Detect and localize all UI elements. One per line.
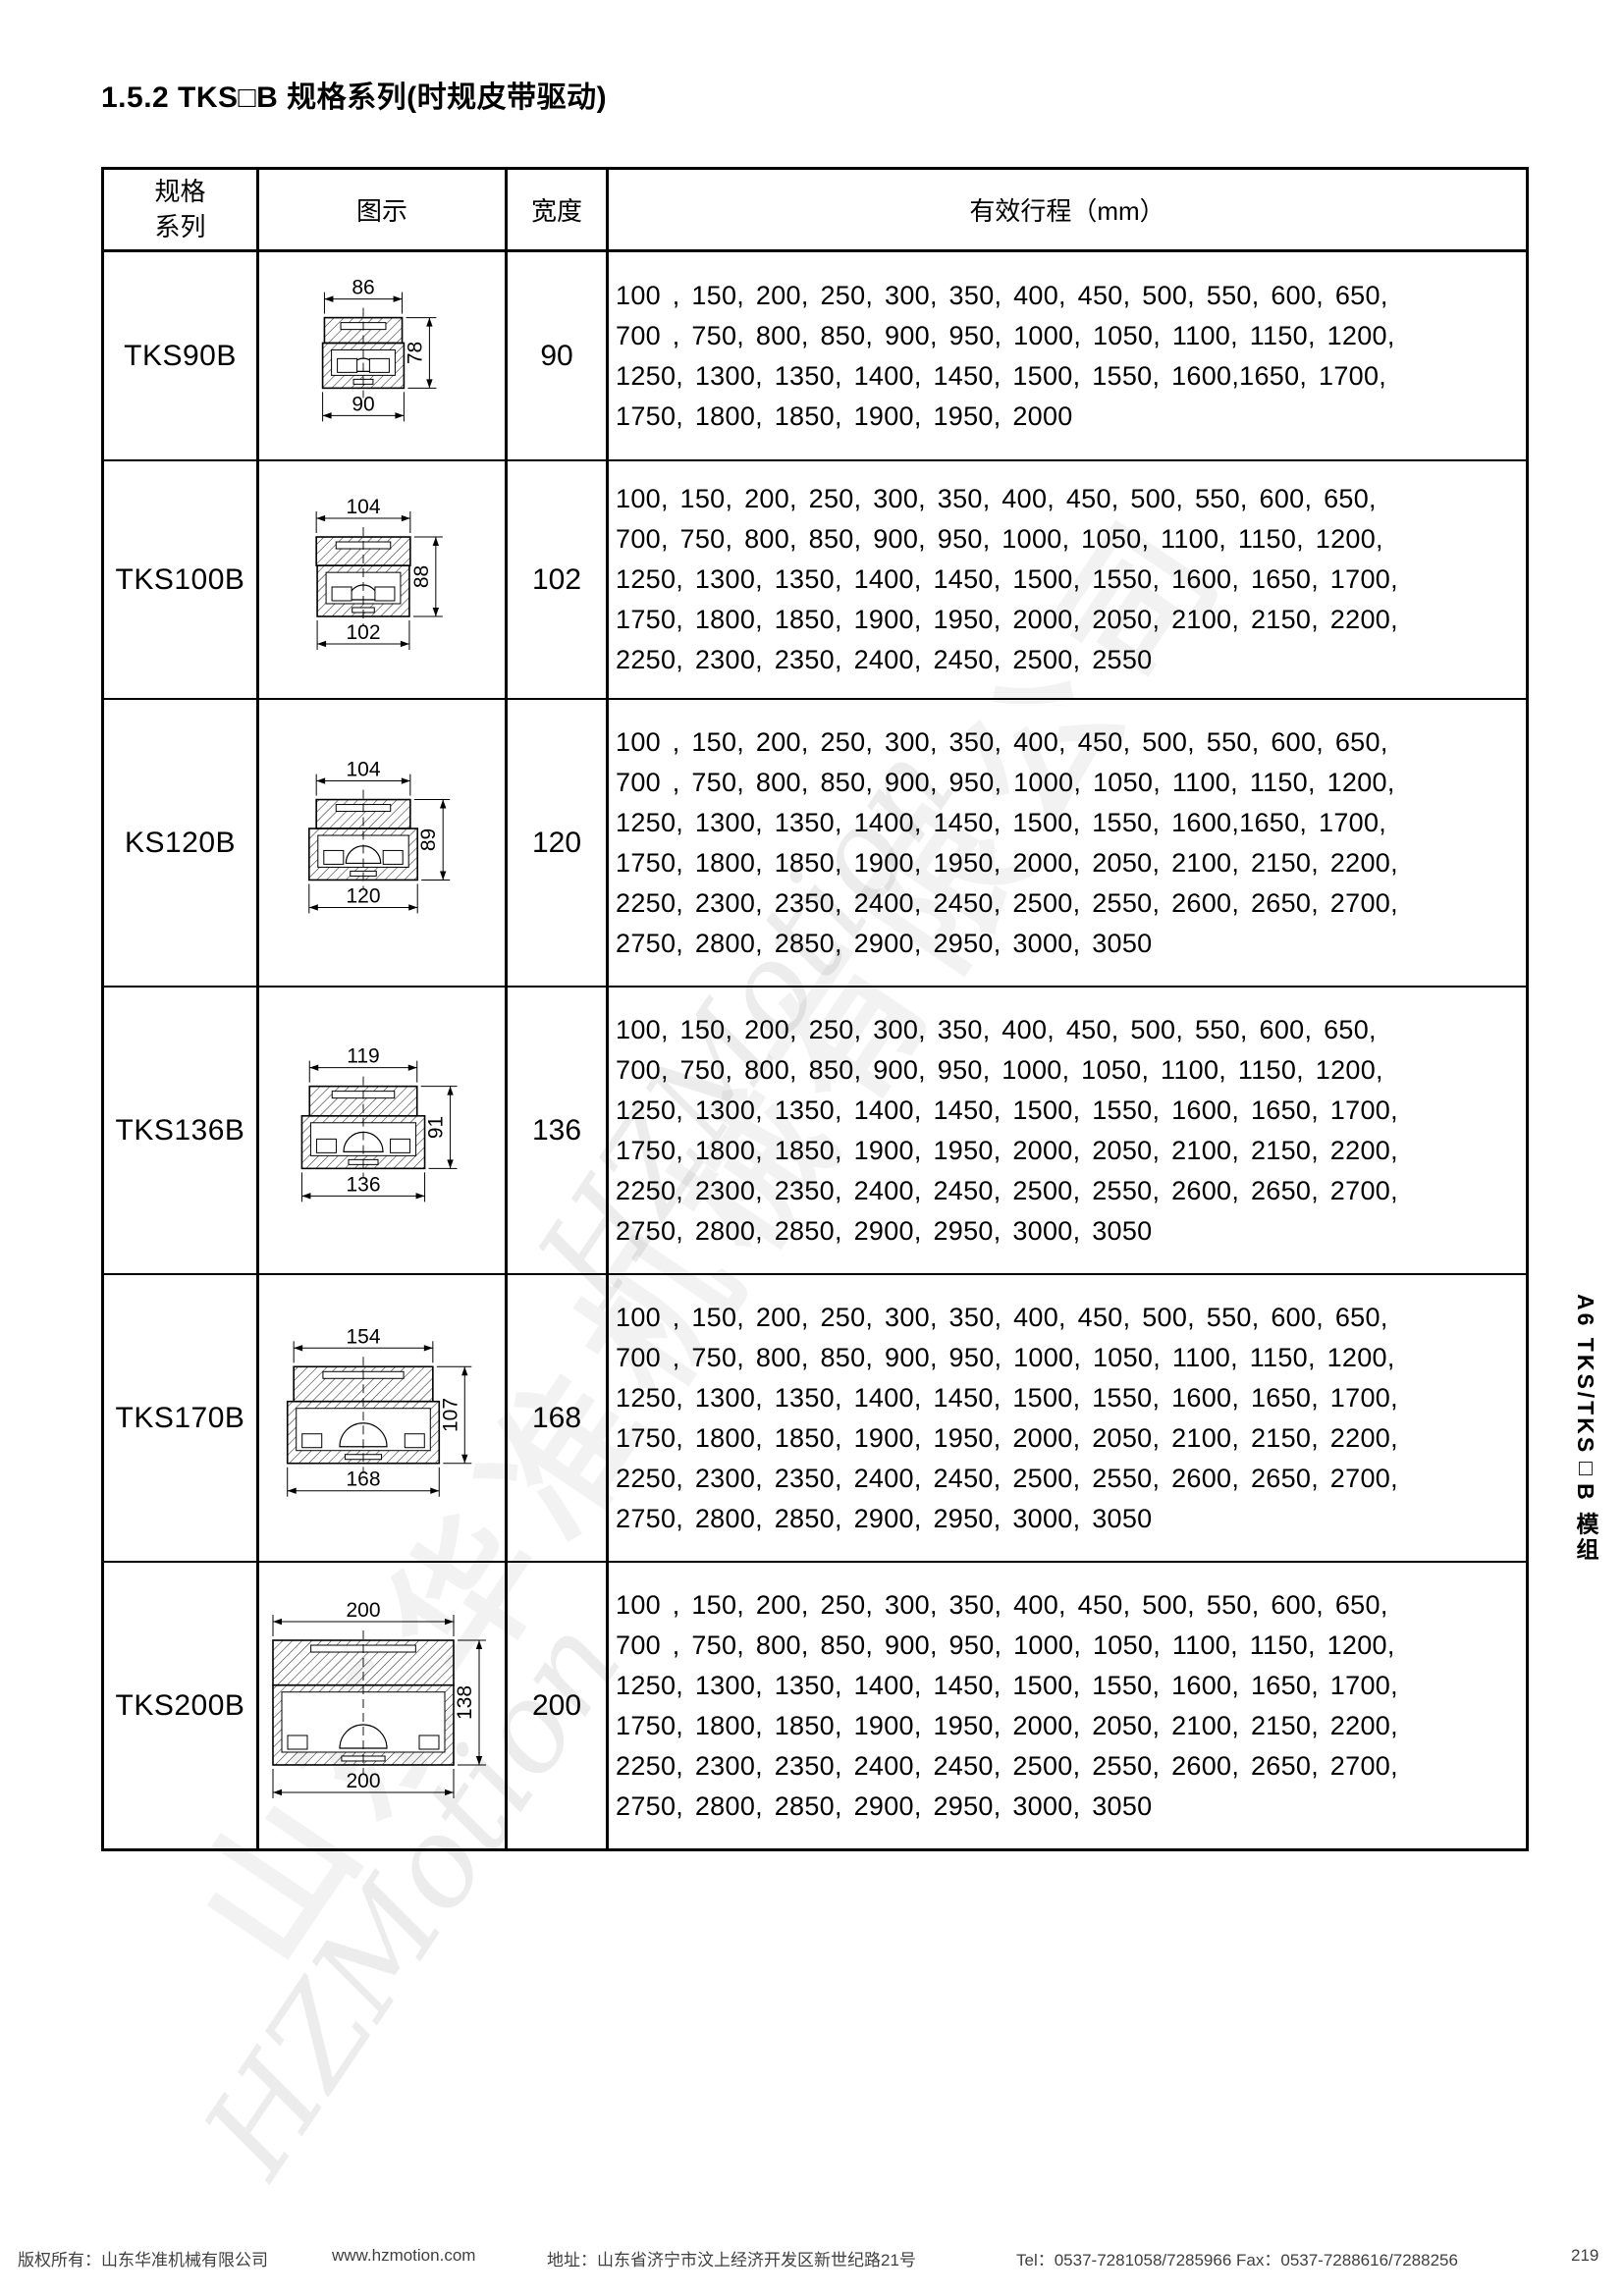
stroke-cell: 100, 150, 200, 250, 300, 350, 400, 450, … [606, 988, 1526, 1273]
width-cell: 120 [505, 700, 606, 986]
diagram-top-width-label: 86 [352, 277, 374, 299]
width-value: 168 [532, 1402, 581, 1435]
diagram-bottom-width-label: 136 [346, 1173, 380, 1196]
guide-block-right [419, 1735, 439, 1749]
diagram-bottom-width-label: 120 [346, 884, 380, 907]
guide-block-left [316, 1139, 336, 1152]
footer-copyright: 版权所有：山东华准机械有限公司 [18, 2246, 268, 2270]
module-cross-section-diagram: 11913691 [261, 989, 504, 1271]
stroke-list: 100 , 150, 200, 250, 300, 350, 400, 450,… [609, 1294, 1402, 1543]
module-cross-section-diagram: 200200138 [261, 1565, 504, 1846]
stroke-list: 100, 150, 200, 250, 300, 350, 400, 450, … [609, 475, 1402, 684]
width-cell: 200 [505, 1563, 606, 1848]
table-row: TKS200B 200200138 200 100 , 150, 200, 25… [104, 1561, 1526, 1848]
table-row: TKS170B 154168107 168 100 , 150, 200, 25… [104, 1273, 1526, 1561]
guide-block-right [383, 850, 403, 864]
series-name: TKS200B [116, 1689, 245, 1723]
series-name: TKS136B [116, 1114, 245, 1148]
column-header-series: 规格 系列 [104, 170, 256, 249]
guide-block-left [288, 1735, 307, 1749]
guide-block-left [301, 1434, 321, 1448]
spec-table: 规格 系列 图示 宽度 有效行程（mm） TKS90B 869078 90 10… [101, 167, 1529, 1851]
diagram-height-label: 89 [417, 828, 440, 851]
diagram-height-label: 91 [424, 1116, 447, 1139]
diagram-cell: 10410288 [256, 461, 505, 698]
diagram-bottom-width-label: 90 [352, 393, 374, 415]
stroke-cell: 100 , 150, 200, 250, 300, 350, 400, 450,… [606, 1275, 1526, 1561]
series-name: TKS170B [116, 1402, 245, 1435]
diagram-height-label: 88 [409, 565, 432, 588]
guide-block-right [369, 358, 389, 372]
module-cross-section-diagram: 869078 [261, 254, 504, 457]
diagram-cell: 11913691 [256, 988, 505, 1273]
series-name-cell: TKS90B [104, 252, 256, 459]
footer-website-link[interactable]: www.hzmotion.com [332, 2246, 475, 2266]
diagram-height-label: 138 [454, 1685, 476, 1720]
series-name-cell: TKS100B [104, 461, 256, 698]
table-row: TKS100B 10410288 102 100, 150, 200, 250,… [104, 459, 1526, 698]
module-cross-section-diagram: 154168107 [261, 1277, 504, 1559]
diagram-bottom-width-label: 200 [346, 1770, 380, 1792]
diagram-cell: 869078 [256, 252, 505, 459]
diagram-top-width-label: 119 [347, 1045, 379, 1068]
series-name-cell: TKS200B [104, 1563, 256, 1848]
width-value: 120 [532, 827, 581, 860]
width-cell: 136 [505, 988, 606, 1273]
guide-block-left [323, 850, 343, 864]
module-cross-section-diagram: 10412089 [261, 702, 504, 984]
table-row: TKS136B 11913691 136 100, 150, 200, 250,… [104, 986, 1526, 1273]
stroke-list: 100 , 150, 200, 250, 300, 350, 400, 450,… [609, 1581, 1402, 1831]
width-value: 136 [532, 1114, 581, 1148]
width-cell: 168 [505, 1275, 606, 1561]
width-value: 102 [532, 563, 581, 597]
series-name-cell: KS120B [104, 700, 256, 986]
diagram-bottom-width-label: 168 [346, 1468, 380, 1491]
table-header-row: 规格 系列 图示 宽度 有效行程（mm） [104, 170, 1526, 250]
diagram-top-width-label: 154 [346, 1325, 380, 1348]
footer-page-number: 219 [1571, 2246, 1598, 2266]
guide-block-right [405, 1434, 424, 1448]
guide-block-left [337, 358, 356, 372]
diagram-bottom-width-label: 102 [346, 621, 380, 644]
diagram-cell: 10412089 [256, 700, 505, 986]
footer-address: 地址：山东省济宁市汶上经济开发区新世纪路21号 [547, 2246, 916, 2270]
page-title: 1.5.2 TKS□B 规格系列(时规皮带驱动) [101, 73, 607, 116]
sidebar-vertical-label: A6 TKS/TKS□B 模组 [1569, 1294, 1602, 1563]
series-name-cell: TKS136B [104, 988, 256, 1273]
diagram-cell: 154168107 [256, 1275, 505, 1561]
stroke-cell: 100 , 150, 200, 250, 300, 350, 400, 450,… [606, 700, 1526, 986]
stroke-cell: 100, 150, 200, 250, 300, 350, 400, 450, … [606, 461, 1526, 698]
guide-block-right [390, 1139, 409, 1152]
width-cell: 90 [505, 252, 606, 459]
width-value: 200 [532, 1689, 581, 1723]
diagram-top-width-label: 104 [346, 759, 380, 781]
stroke-cell: 100 , 150, 200, 250, 300, 350, 400, 450,… [606, 252, 1526, 459]
width-value: 90 [540, 340, 572, 373]
column-header-stroke: 有效行程（mm） [606, 170, 1526, 249]
series-name: TKS90B [124, 340, 237, 373]
table-row: KS120B 10412089 120 100 , 150, 200, 250,… [104, 698, 1526, 986]
series-name-cell: TKS170B [104, 1275, 256, 1561]
diagram-top-width-label: 104 [346, 496, 380, 518]
diagram-height-label: 78 [404, 342, 426, 364]
guide-block-left [332, 587, 352, 601]
module-cross-section-diagram: 10410288 [261, 463, 504, 696]
diagram-top-width-label: 200 [346, 1599, 380, 1622]
column-header-diagram: 图示 [256, 170, 505, 249]
diagram-height-label: 107 [439, 1398, 461, 1432]
stroke-list: 100 , 150, 200, 250, 300, 350, 400, 450,… [609, 719, 1402, 968]
page-footer: 版权所有：山东华准机械有限公司 www.hzmotion.com 地址：山东省济… [0, 2246, 1624, 2275]
stroke-list: 100 , 150, 200, 250, 300, 350, 400, 450,… [609, 272, 1399, 441]
column-header-width: 宽度 [505, 170, 606, 249]
stroke-cell: 100 , 150, 200, 250, 300, 350, 400, 450,… [606, 1563, 1526, 1848]
table-row: TKS90B 869078 90 100 , 150, 200, 250, 30… [104, 250, 1526, 459]
width-cell: 102 [505, 461, 606, 698]
series-name: KS120B [125, 827, 236, 860]
stroke-list: 100, 150, 200, 250, 300, 350, 400, 450, … [609, 1006, 1402, 1255]
diagram-cell: 200200138 [256, 1563, 505, 1848]
series-name: TKS100B [116, 563, 245, 597]
footer-tel-fax: Tel：0537-7281058/7285966 Fax：0537-728861… [1016, 2246, 1458, 2270]
guide-block-right [374, 587, 394, 601]
